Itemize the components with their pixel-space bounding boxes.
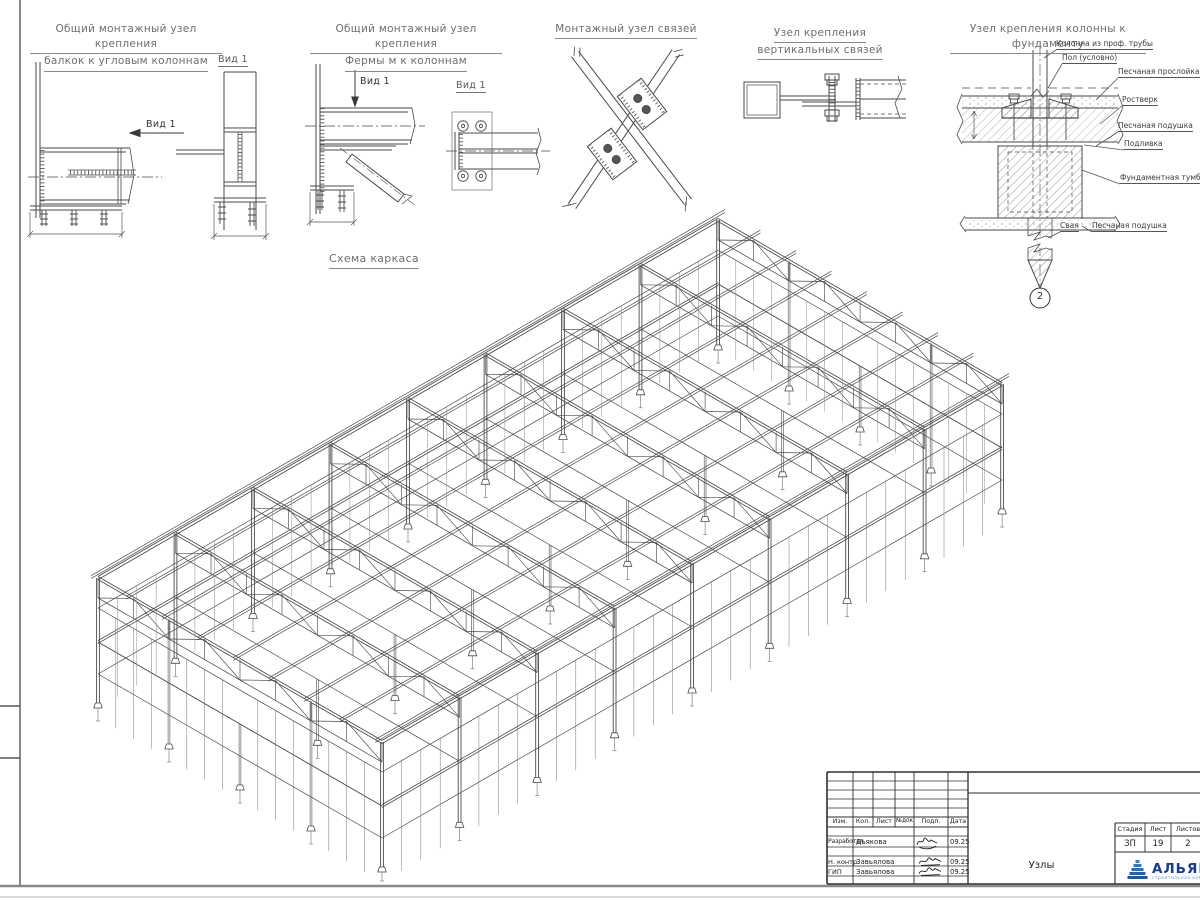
detail4-title-line1: Узел крепления <box>774 26 866 43</box>
detail5-marker: 2 <box>1030 291 1050 302</box>
drawing-canvas <box>0 0 1200 900</box>
tb-sheet-value: 19 <box>1145 839 1171 849</box>
detail-vertical-bracing <box>744 74 906 122</box>
view1-arrow <box>130 130 184 137</box>
detail1-view1-label: Вид 1 <box>218 54 248 67</box>
detail3-title-line1: Монтажный узел связей <box>555 22 696 39</box>
detail1-title-line2: балкок к угловым колоннам <box>44 54 208 71</box>
anno-grillage: Ростверк <box>1122 96 1158 106</box>
detail2-title-line2: Фермы м к колоннам <box>345 54 467 71</box>
tb-name-developer: Дьякова <box>856 838 887 846</box>
tb-col-doc: №док <box>895 818 914 824</box>
sheet-frame <box>0 0 20 885</box>
detail1-view1-arrow-label: Вид 1 <box>146 119 176 130</box>
tb-sheets-value: 2 <box>1171 839 1200 849</box>
anno-sand-layer: Песчаная прослойка <box>1118 68 1200 78</box>
anno-floor: Пол (условно) <box>1062 54 1117 64</box>
tb-date-developer: 09.25 <box>950 838 969 846</box>
tb-role-ncontrol: Н. контр. <box>828 858 859 866</box>
frame-scheme-drawing <box>91 210 1009 881</box>
detail2-title-line1: Общий монтажный узел крепления <box>310 22 502 54</box>
anno-sand-cushion-1: Песчаная подушка <box>1118 122 1193 132</box>
detail-truss-column-view1 <box>446 112 550 190</box>
detail2-view1-label: Вид 1 <box>456 80 486 93</box>
tb-date-ncontrol: 09.25 <box>950 858 969 866</box>
tb-name-gip: Завьялова <box>856 868 894 876</box>
detail-beam-corner-column-view1 <box>176 72 269 240</box>
anno-pedestal: Фундаментная тумба <box>1120 174 1200 184</box>
tb-col-list: Лист <box>873 818 895 825</box>
logo-tagline: строительная компания <box>1152 876 1200 881</box>
detail-truss-column <box>305 64 425 226</box>
anno-sand-cushion-2: Песчаная подушка <box>1092 222 1167 232</box>
tb-col-data: Дата <box>948 818 968 825</box>
anno-pile: Свая <box>1060 222 1079 232</box>
tb-col-podp: Подп. <box>914 818 948 825</box>
tb-col-izm: Изм. <box>827 818 853 825</box>
detail1-title-line1: Общий монтажный узел крепления <box>30 22 222 54</box>
detail-bracing-node <box>562 43 698 216</box>
sheet-bottom-edge <box>0 886 1200 897</box>
anno-grout: Подливка <box>1124 140 1163 150</box>
detail2-title: Общий монтажный узел крепления Фермы м к… <box>310 22 502 72</box>
tb-stage-label: Стадия <box>1115 825 1145 833</box>
scheme-title-line: Схема каркаса <box>329 251 419 269</box>
tb-date-gip: 09.25 <box>950 868 969 876</box>
scheme-title: Схема каркаса <box>318 251 430 269</box>
signatures <box>917 838 941 875</box>
logo-name: АЛЬЯНС <box>1152 861 1200 877</box>
detail4-title-line2: вертикальных связей <box>757 43 882 60</box>
tb-role-gip: ГИП <box>828 868 842 876</box>
tb-sheet-label: Лист <box>1145 825 1171 833</box>
tb-doc-title: Узлы <box>968 860 1115 871</box>
detail4-title: Узел крепления вертикальных связей <box>744 26 896 60</box>
detail1-title: Общий монтажный узел крепления балкок к … <box>30 22 222 72</box>
tb-col-kol: Кол. <box>853 818 873 825</box>
detail3-title: Монтажный узел связей <box>555 22 697 39</box>
logo-triangle-icon <box>1128 860 1148 879</box>
tb-stage-value: ЗП <box>1115 839 1145 849</box>
tb-sheets-label: Листов <box>1171 825 1200 833</box>
anno-column-pipe: Колонна из проф. трубы <box>1056 40 1153 50</box>
tb-name-ncontrol: Завьялова <box>856 858 894 866</box>
detail-beam-corner-column <box>27 62 162 238</box>
drawing-sheet: Общий монтажный узел крепления балкок к … <box>0 0 1200 900</box>
detail2-view1-arrow-label: Вид 1 <box>360 76 390 87</box>
